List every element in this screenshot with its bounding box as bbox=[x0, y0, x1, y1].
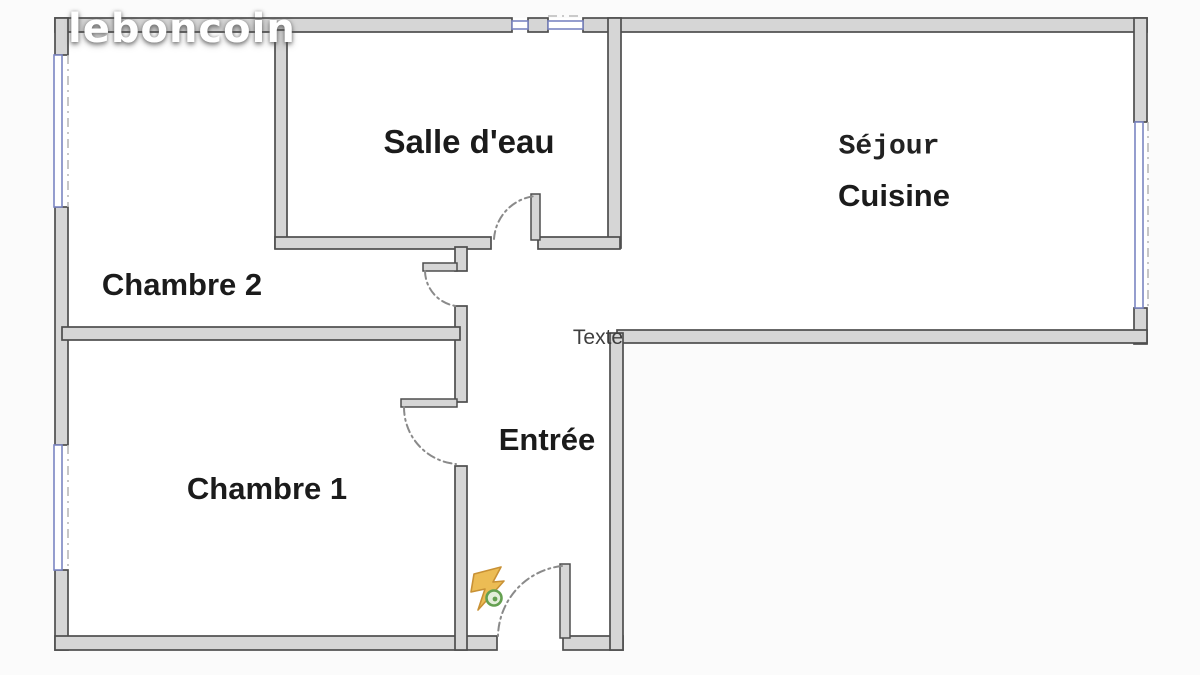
window-chambre2-left bbox=[54, 55, 62, 207]
room-label-salle-deau: Salle d'eau bbox=[383, 123, 554, 161]
door-leaf-salle-deau bbox=[531, 194, 540, 240]
window-salle-deau-top-right bbox=[548, 21, 583, 29]
room-label-sejour: Séjour bbox=[839, 132, 940, 163]
floor-plan-screenshot: Salle d'eau Séjour Cuisine Chambre 2 Cha… bbox=[0, 0, 1200, 675]
room-label-entree: Entrée bbox=[499, 422, 595, 458]
annotation-texte: Texte bbox=[573, 326, 623, 350]
window-sejour-right bbox=[1135, 122, 1143, 308]
wall-divider-lower bbox=[455, 466, 467, 650]
wall-salle-deau-left bbox=[275, 30, 287, 248]
wall-top-window-post bbox=[528, 18, 548, 32]
room-label-cuisine: Cuisine bbox=[838, 178, 950, 214]
wall-divider-middle bbox=[455, 306, 467, 402]
wall-salle-deau-bottom-right bbox=[538, 237, 620, 249]
window-salle-deau-top-left bbox=[512, 21, 528, 29]
leboncoin-logo: leboncoin bbox=[68, 6, 296, 52]
room-label-chambre2: Chambre 2 bbox=[102, 267, 262, 303]
wall-entree-right bbox=[610, 333, 623, 650]
wall-salle-deau-right bbox=[608, 18, 621, 248]
wall-chambres-divider bbox=[62, 327, 460, 340]
green-target-dot bbox=[493, 597, 498, 602]
door-leaf-chambre2 bbox=[423, 263, 457, 271]
wall-top-right-segment bbox=[583, 18, 1147, 32]
door-leaf-chambre1 bbox=[401, 399, 457, 407]
door-leaf-entrance bbox=[560, 564, 570, 638]
wall-right-upper-segment bbox=[1134, 18, 1147, 122]
wall-sejour-bottom bbox=[617, 330, 1147, 343]
wall-left-segment bbox=[55, 18, 68, 55]
room-label-chambre1: Chambre 1 bbox=[187, 471, 347, 507]
window-chambre1-left bbox=[54, 445, 62, 570]
wall-left-segment bbox=[55, 207, 68, 445]
wall-bottom-left-segment bbox=[55, 636, 497, 650]
